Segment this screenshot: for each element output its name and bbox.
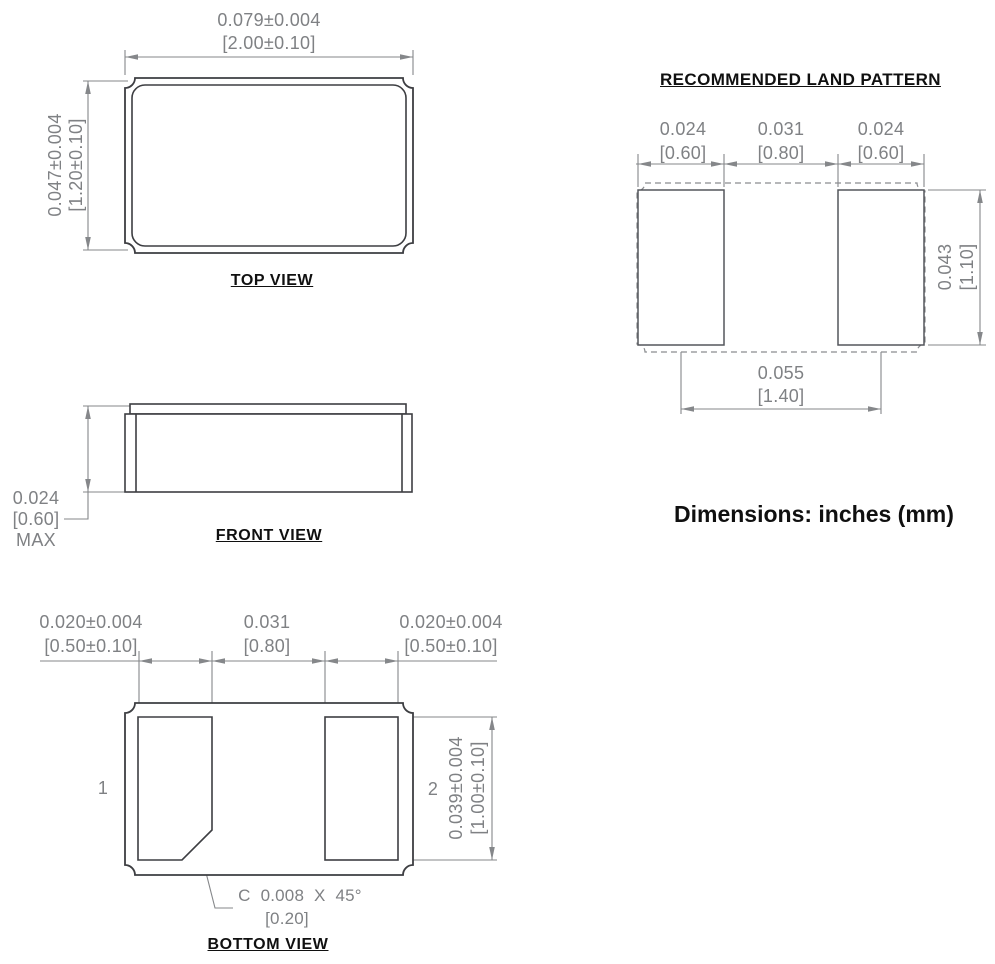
bottom-view-chamfer-callout-mm: [0.20] <box>225 909 349 929</box>
bottom-view-pad1-width-mm: [0.50±0.10] <box>26 634 156 658</box>
land-pattern-pad2-width-dim: 0.024 [0.60] <box>831 117 931 165</box>
front-view-drawing <box>64 404 412 519</box>
land-pattern-pitch-dim: 0.055 [1.40] <box>731 362 831 408</box>
front-view-height-dim-inches: 0.024 <box>6 488 66 509</box>
top-view-package-outline <box>125 78 413 253</box>
top-view-height-dim-inches: 0.047±0.004 <box>45 65 66 265</box>
bottom-view-pad2-width-dim: 0.020±0.004 [0.50±0.10] <box>386 610 516 658</box>
land-pattern-pad2-width-mm: [0.60] <box>831 141 931 165</box>
front-view-label: FRONT VIEW <box>189 527 349 545</box>
top-view-width-dim-mm: [2.00±0.10] <box>169 33 369 54</box>
bottom-view-chamfer-callout-inches: C 0.008 X 45° <box>225 886 375 906</box>
front-view-lid <box>130 404 406 414</box>
top-view-drawing <box>83 50 413 253</box>
land-pattern-pitch-inches: 0.055 <box>731 362 831 385</box>
land-pattern-pad1-width-dim: 0.024 [0.60] <box>633 117 733 165</box>
land-pattern-pad1 <box>638 190 724 345</box>
land-pattern-pad2-width-inches: 0.024 <box>831 117 931 141</box>
bottom-view-gap-mm: [0.80] <box>202 634 332 658</box>
front-view-height-dim-mm: [0.60] <box>6 509 66 530</box>
bottom-view-pad-height-inches: 0.039±0.004 <box>445 708 467 868</box>
land-pattern-gap-mm: [0.80] <box>731 141 831 165</box>
land-pattern-title: RECOMMENDED LAND PATTERN <box>660 70 926 90</box>
bottom-view-label: BOTTOM VIEW <box>188 936 348 954</box>
bottom-view-gap-dim: 0.031 [0.80] <box>202 610 332 658</box>
bottom-view-pad2 <box>325 717 398 860</box>
bottom-view-pad2-width-mm: [0.50±0.10] <box>386 634 516 658</box>
land-pattern-pitch-mm: [1.40] <box>731 385 831 408</box>
top-view-height-dim-mm: [1.20±0.10] <box>66 65 87 265</box>
bottom-view-pad2-width-inches: 0.020±0.004 <box>386 610 516 634</box>
top-view-width-dim-inches: 0.079±0.004 <box>169 10 369 31</box>
units-note: Dimensions: inches (mm) <box>674 501 974 528</box>
bottom-view-pad1 <box>138 717 212 860</box>
land-pattern-pad2 <box>838 190 924 345</box>
front-view-height-dim-qualifier: MAX <box>6 530 66 551</box>
land-pattern-pad-height-dim: 0.043 [1.10] <box>934 187 978 347</box>
land-pattern-gap-inches: 0.031 <box>731 117 831 141</box>
bottom-view-pin2-label: 2 <box>423 779 443 800</box>
front-view-body <box>125 414 412 492</box>
front-view-height-dim: 0.024 [0.60] MAX <box>6 488 66 551</box>
top-view-label: TOP VIEW <box>192 272 352 290</box>
bottom-view-pad-height-mm: [1.00±0.10] <box>467 708 489 868</box>
land-pattern-pad-height-inches: 0.043 <box>934 187 956 347</box>
bottom-view-pin1-label: 1 <box>93 778 113 799</box>
top-view-height-dim: 0.047±0.004 [1.20±0.10] <box>45 65 87 265</box>
bottom-view-pad1-width-inches: 0.020±0.004 <box>26 610 156 634</box>
bottom-view-pad1-width-dim: 0.020±0.004 [0.50±0.10] <box>26 610 156 658</box>
land-pattern-pad1-width-inches: 0.024 <box>633 117 733 141</box>
bottom-view-pad-height-dim: 0.039±0.004 [1.00±0.10] <box>445 708 489 868</box>
bottom-view-gap-inches: 0.031 <box>202 610 332 634</box>
land-pattern-gap-dim: 0.031 [0.80] <box>731 117 831 165</box>
land-pattern-pad1-width-mm: [0.60] <box>633 141 733 165</box>
land-pattern-pad-height-mm: [1.10] <box>956 187 978 347</box>
drawing-page: 0.079±0.004 [2.00±0.10] 0.047±0.004 [1.2… <box>0 0 995 964</box>
